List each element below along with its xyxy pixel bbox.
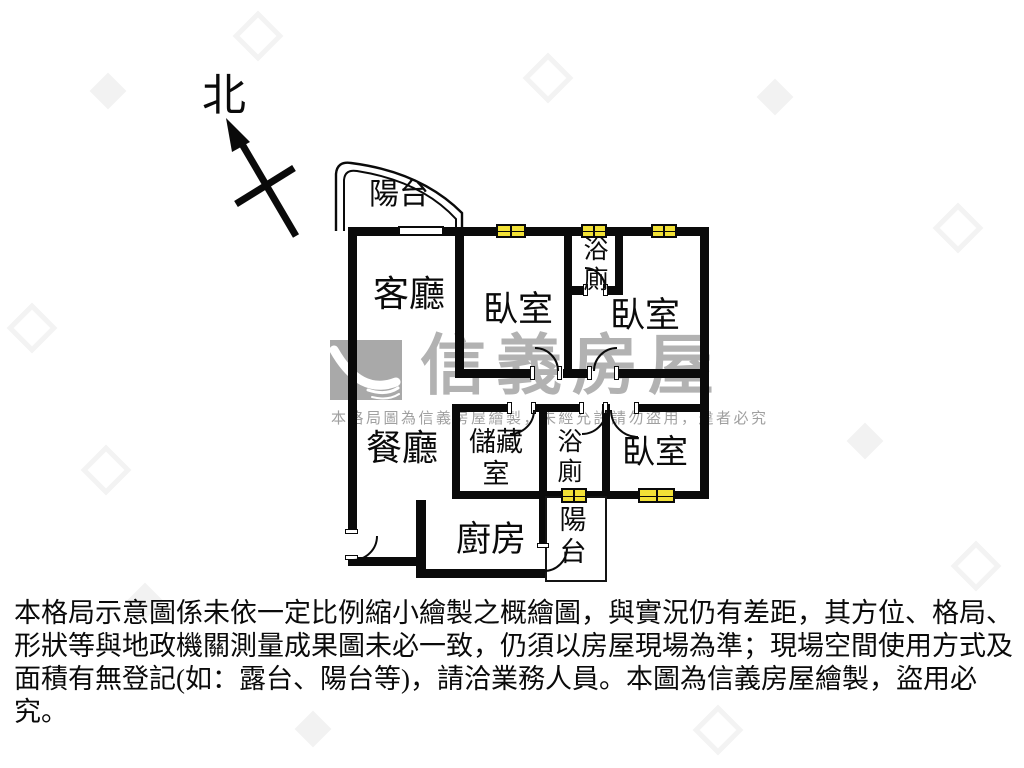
room-label-bedroom1: 臥室 bbox=[483, 292, 553, 327]
room-label-bedroom3: 臥室 bbox=[622, 437, 688, 470]
room-label-balcony-top: 陽台 bbox=[369, 180, 429, 210]
room-label-bath-lower: 浴廁 bbox=[557, 428, 583, 488]
disclaimer-line-3: 面積有無登記(如：露台、陽台等)，請洽業務人員。本圖為信義房屋繪製，盜用必究。 bbox=[14, 663, 1016, 729]
room-label-storage: 儲藏室 bbox=[468, 426, 524, 491]
room-label-living: 客廳 bbox=[373, 276, 445, 312]
room-label-kitchen: 廚房 bbox=[456, 522, 526, 557]
disclaimer-line-1: 本格局示意圖係未依一定比例縮小繪製之概繪圖，與實況仍有差距，其方位、格局、 bbox=[14, 597, 1016, 630]
room-label-balcony-bottom: 陽台 bbox=[559, 504, 587, 569]
room-label-dining: 餐廳 bbox=[366, 430, 438, 466]
disclaimer-line-2: 形狀等與地政機關測量成果圖未必一致，仍須以房屋現場為準；現場空間使用方式及 bbox=[14, 630, 1016, 663]
room-label-bath-top: 浴廁 bbox=[583, 236, 609, 296]
floorplan-page: { "compass": { "north_label": "北" }, "ro… bbox=[0, 0, 1024, 768]
disclaimer: 本格局示意圖係未依一定比例縮小繪製之概繪圖，與實況仍有差距，其方位、格局、 形狀… bbox=[14, 597, 1016, 729]
room-label-bedroom2: 臥室 bbox=[610, 298, 680, 333]
